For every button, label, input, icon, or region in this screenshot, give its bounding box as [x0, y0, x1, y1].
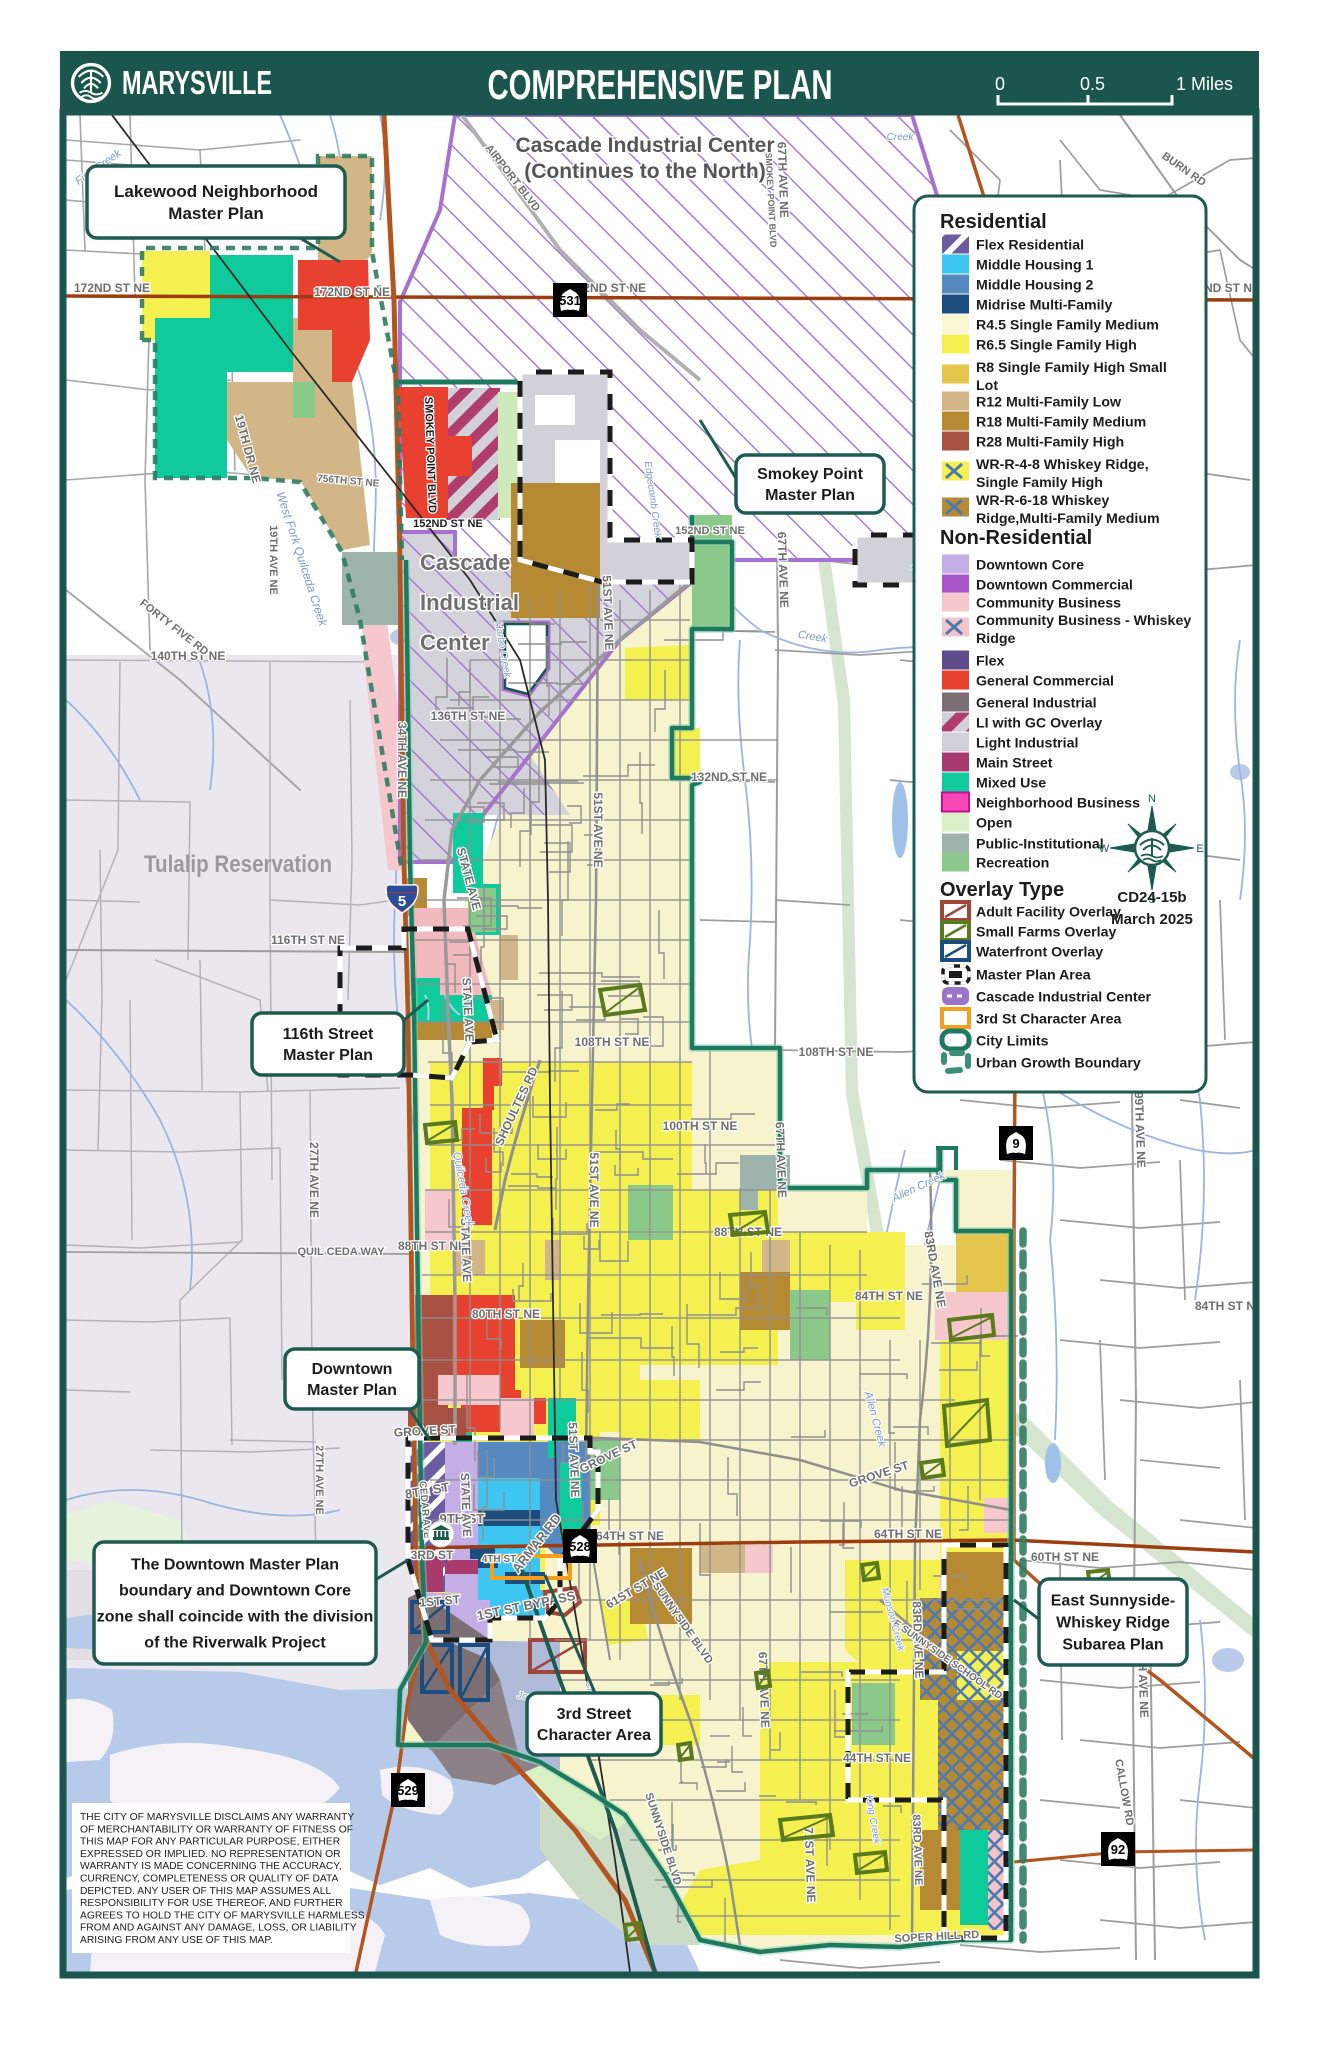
svg-text:Overlay Type: Overlay Type: [940, 879, 1064, 901]
svg-text:AGREES TO HOLD THE CITY OF MAR: AGREES TO HOLD THE CITY OF MARYSVILLE HA…: [80, 1910, 365, 1921]
svg-text:44TH ST NE: 44TH ST NE: [843, 1751, 911, 1765]
svg-text:Lot: Lot: [976, 378, 998, 394]
svg-text:Master Plan Area: Master Plan Area: [976, 968, 1091, 984]
svg-text:Mixed Use: Mixed Use: [976, 776, 1046, 792]
svg-text:Lakewood Neighborhood: Lakewood Neighborhood: [114, 182, 318, 201]
svg-text:Residential: Residential: [940, 211, 1047, 233]
svg-text:67TH AVE NE: 67TH AVE NE: [775, 532, 792, 608]
svg-text:172ND ST NE: 172ND ST NE: [314, 285, 390, 299]
svg-text:Flex: Flex: [976, 654, 1004, 670]
svg-text:LI with GC Overlay: LI with GC Overlay: [976, 716, 1102, 732]
svg-text:Main Street: Main Street: [976, 756, 1053, 772]
svg-text:City Limits: City Limits: [976, 1034, 1049, 1050]
svg-text:Master Plan: Master Plan: [765, 487, 855, 504]
svg-text:80TH ST NE: 80TH ST NE: [472, 1307, 540, 1321]
svg-text:R4.5 Single Family Medium: R4.5 Single Family Medium: [976, 318, 1159, 334]
svg-text:Ridge,Multi-Family Medium: Ridge,Multi-Family Medium: [976, 511, 1160, 527]
svg-text:EXPRESSED OR IMPLIED. NO REP: EXPRESSED OR IMPLIED. NO REPRESENTATION …: [80, 1849, 341, 1860]
svg-text:Community Business - Whiskey: Community Business - Whiskey: [976, 613, 1191, 629]
svg-text:529: 529: [397, 1783, 419, 1798]
svg-text:64TH ST NE: 64TH ST NE: [596, 1529, 664, 1543]
svg-text:STATE AVE: STATE AVE: [458, 1473, 474, 1538]
svg-text:R8 Single Family High Small: R8 Single Family High Small: [976, 360, 1167, 376]
svg-text:ARISING FROM ANY USE OF THIS M: ARISING FROM ANY USE OF THIS MAP.: [80, 1935, 273, 1946]
svg-text:Recreation: Recreation: [976, 856, 1049, 872]
svg-text:March 2025: March 2025: [1111, 911, 1193, 928]
svg-text:Master Plan: Master Plan: [283, 1047, 373, 1064]
svg-text:Open: Open: [976, 816, 1012, 832]
svg-text:The Downtown Master Plan: The Downtown Master Plan: [131, 1557, 339, 1574]
svg-text:R18 Multi-Family Medium: R18 Multi-Family Medium: [976, 415, 1146, 431]
svg-text:108TH ST NE: 108TH ST NE: [575, 1035, 650, 1049]
svg-text:THIS MAP FOR ANY PARTICULAR PU: THIS MAP FOR ANY PARTICULAR PURPOSE, EIT…: [80, 1837, 340, 1848]
svg-text:CURRENCY, COMPLETENESS OR QUAL: CURRENCY, COMPLETENESS OR QUALITY OF DAT…: [80, 1874, 339, 1885]
svg-text:27TH AVE NE: 27TH AVE NE: [307, 1142, 321, 1218]
svg-text:108TH ST NE: 108TH ST NE: [799, 1045, 874, 1059]
svg-text:E: E: [1196, 843, 1203, 855]
svg-text:51ST AVE NE: 51ST AVE NE: [600, 575, 617, 651]
svg-text:Master Plan: Master Plan: [168, 204, 263, 223]
svg-text:51ST AVE NE: 51ST AVE NE: [591, 792, 605, 867]
svg-text:Single Family High: Single Family High: [976, 475, 1103, 491]
svg-text:WARRANTY IS MADE CONCERNING TH: WARRANTY IS MADE CONCERNING THE ACCURACY…: [80, 1861, 342, 1872]
svg-text:84TH ST NE: 84TH ST NE: [855, 1289, 923, 1303]
svg-text:116th Street: 116th Street: [283, 1026, 374, 1043]
svg-text:116TH ST NE: 116TH ST NE: [271, 933, 345, 947]
svg-text:DEPICTED. ANY USER OF THIS MA: DEPICTED. ANY USER OF THIS MAP ASSUMES A…: [80, 1886, 331, 1897]
svg-text:MARYSVILLE: MARYSVILLE: [122, 64, 272, 101]
svg-text:Adult Facility Overlay: Adult Facility Overlay: [976, 905, 1121, 921]
svg-text:THE CITY OF MARYSVILLE DISCLAI: THE CITY OF MARYSVILLE DISCLAIMS ANY WAR…: [80, 1812, 354, 1823]
svg-text:9: 9: [1012, 1136, 1019, 1151]
svg-text:FROM AND AGAINST ANY DAMAGE, L: FROM AND AGAINST ANY DAMAGE, LOSS, OR LI…: [80, 1923, 357, 1934]
svg-text:140TH ST NE: 140TH ST NE: [151, 649, 226, 663]
svg-text:92: 92: [1111, 1842, 1125, 1857]
svg-text:Ridge: Ridge: [976, 631, 1016, 647]
svg-text:zone shall coincide with the d: zone shall coincide with the division: [97, 1609, 373, 1626]
svg-text:Neighborhood Business: Neighborhood Business: [976, 796, 1140, 812]
svg-text:Creek: Creek: [887, 132, 915, 143]
svg-text:Industrial: Industrial: [420, 590, 519, 615]
svg-text:Master Plan: Master Plan: [307, 1382, 397, 1399]
svg-text:General Industrial: General Industrial: [976, 696, 1097, 712]
svg-text:boundary and Downtown Core: boundary and Downtown Core: [119, 1583, 351, 1600]
svg-text:CD24-15b: CD24-15b: [1117, 889, 1186, 906]
svg-text:Midrise Multi-Family: Midrise Multi-Family: [976, 298, 1112, 314]
svg-text:Non-Residential: Non-Residential: [940, 527, 1092, 549]
svg-text:N: N: [1148, 793, 1156, 805]
svg-text:83RD AVE NE: 83RD AVE NE: [910, 1814, 924, 1885]
svg-text:Small Farms Overlay: Small Farms Overlay: [976, 925, 1116, 941]
svg-text:60TH ST NE: 60TH ST NE: [1031, 1550, 1099, 1564]
svg-text:64TH ST NE: 64TH ST NE: [874, 1527, 942, 1541]
svg-text:528: 528: [569, 1539, 591, 1554]
svg-text:Waterfront Overlay: Waterfront Overlay: [976, 945, 1103, 961]
svg-text:WR-R-4-8 Whiskey Ridge,: WR-R-4-8 Whiskey Ridge,: [976, 457, 1149, 473]
svg-text:3RD ST: 3RD ST: [411, 1548, 454, 1562]
svg-text:531: 531: [559, 293, 581, 308]
svg-text:19TH AVE NE: 19TH AVE NE: [267, 525, 279, 595]
svg-text:152ND ST NE: 152ND ST NE: [413, 518, 483, 530]
svg-text:Downtown: Downtown: [312, 1361, 393, 1378]
svg-text:152ND ST NE: 152ND ST NE: [675, 525, 745, 537]
svg-text:51ST AVE NE: 51ST AVE NE: [587, 1152, 601, 1227]
svg-text:R12 Multi-Family Low: R12 Multi-Family Low: [976, 395, 1122, 411]
svg-text:Light Industrial: Light Industrial: [976, 736, 1078, 752]
svg-text:Middle Housing 2: Middle Housing 2: [976, 278, 1094, 294]
svg-text:OF MERCHANTABILITY OR WARRANTY: OF MERCHANTABILITY OR WARRANTY OF FITNES…: [80, 1824, 353, 1835]
svg-text:RESPONSIBILITY FOR USE THEREOF: RESPONSIBILITY FOR USE THEREOF, AND FURT…: [80, 1898, 343, 1909]
svg-text:WR-R-6-18 Whiskey: WR-R-6-18 Whiskey: [976, 493, 1109, 509]
svg-text:3rd Street: 3rd Street: [557, 1706, 632, 1723]
svg-text:of the Riverwalk Project: of the Riverwalk Project: [144, 1635, 326, 1652]
svg-text:Flex Residential: Flex Residential: [976, 238, 1084, 254]
svg-text:136TH ST NE: 136TH ST NE: [431, 709, 506, 723]
svg-text:67TH AVE NE: 67TH AVE NE: [773, 1122, 790, 1198]
svg-text:W: W: [1099, 843, 1110, 855]
svg-text:East Sunnyside-: East Sunnyside-: [1051, 1593, 1175, 1610]
svg-text:Urban Growth Boundary: Urban Growth Boundary: [976, 1056, 1141, 1072]
svg-text:1 Miles: 1 Miles: [1176, 74, 1233, 94]
svg-text:132ND ST NE: 132ND ST NE: [691, 770, 767, 784]
svg-text:Cascade: Cascade: [420, 550, 511, 575]
svg-text:Character Area: Character Area: [537, 1727, 651, 1744]
svg-text:R28 Multi-Family High: R28 Multi-Family High: [976, 435, 1124, 451]
svg-text:3rd St Character Area: 3rd St Character Area: [976, 1012, 1121, 1028]
svg-text:QUIL CEDA WAY: QUIL CEDA WAY: [298, 1246, 386, 1258]
svg-text:General Commercial: General Commercial: [976, 674, 1114, 690]
svg-text:0.5: 0.5: [1080, 74, 1105, 94]
svg-text:Community Business: Community Business: [976, 596, 1121, 612]
svg-text:Cascade Industrial Center: Cascade Industrial Center: [515, 134, 774, 157]
svg-text:34TH AVE NE: 34TH AVE NE: [395, 722, 409, 798]
svg-text:Center: Center: [420, 630, 490, 655]
svg-text:172ND ST NE: 172ND ST NE: [74, 281, 150, 295]
svg-text:(Continues to the North): (Continues to the North): [524, 160, 765, 183]
svg-text:0: 0: [995, 74, 1005, 94]
svg-text:88TH ST NE: 88TH ST NE: [398, 1239, 466, 1253]
svg-text:Downtown Core: Downtown Core: [976, 558, 1084, 574]
svg-text:R6.5 Single Family High: R6.5 Single Family High: [976, 338, 1137, 354]
svg-text:51ST AVE NE: 51ST AVE NE: [566, 1422, 583, 1498]
svg-text:100TH ST NE: 100TH ST NE: [663, 1119, 738, 1133]
svg-text:Smokey Point: Smokey Point: [757, 466, 863, 483]
svg-text:Public-Institutional: Public-Institutional: [976, 837, 1104, 853]
svg-text:Whiskey Ridge: Whiskey Ridge: [1056, 1615, 1170, 1632]
svg-text:Downtown Commercial: Downtown Commercial: [976, 578, 1133, 594]
svg-text:Cascade Industrial Center: Cascade Industrial Center: [976, 990, 1152, 1006]
svg-text:Subarea Plan: Subarea Plan: [1062, 1637, 1163, 1654]
svg-text:COMPREHENSIVE PLAN: COMPREHENSIVE PLAN: [488, 61, 833, 108]
svg-text:99TH AVE NE: 99TH AVE NE: [1132, 1092, 1149, 1168]
svg-text:27TH AVE NE: 27TH AVE NE: [313, 1445, 325, 1515]
svg-text:5: 5: [398, 893, 406, 910]
svg-text:Middle Housing 1: Middle Housing 1: [976, 258, 1094, 274]
svg-text:Tulalip Reservation: Tulalip Reservation: [144, 851, 332, 878]
